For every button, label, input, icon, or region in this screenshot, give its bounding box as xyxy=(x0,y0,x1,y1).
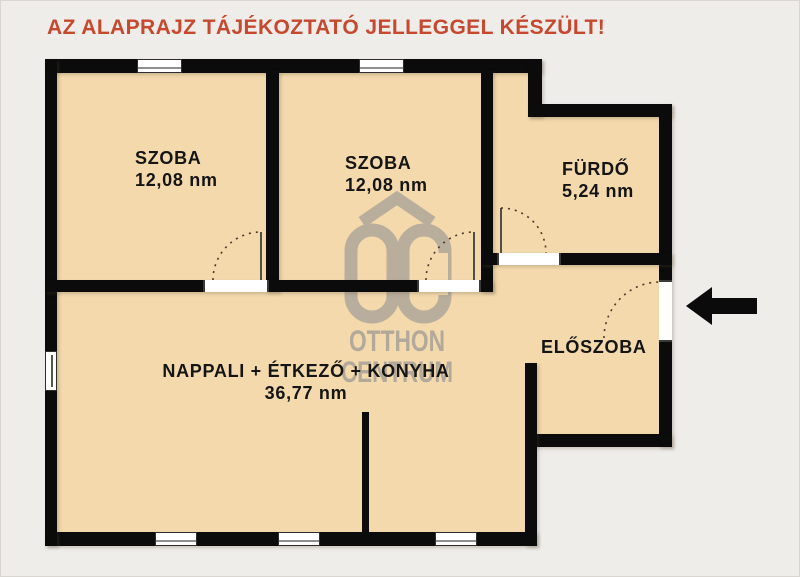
window-nappali-bottom-1 xyxy=(155,532,197,546)
room-area: 5,24 nm xyxy=(562,180,634,202)
wall-hall-left xyxy=(525,363,537,546)
window-nappali-bottom-2 xyxy=(278,532,320,546)
wall-outer-left xyxy=(45,59,57,546)
door-opening-szoba2 xyxy=(417,280,481,292)
room-name: SZOBA xyxy=(345,152,428,174)
disclaimer-title: AZ ALAPRAJZ TÁJÉKOZTATÓ JELLEGGEL KÉSZÜL… xyxy=(47,16,605,40)
wall-between-szoba1-szoba2 xyxy=(266,70,279,292)
floor-slab-right xyxy=(481,104,672,447)
room-area: 12,08 nm xyxy=(135,169,218,191)
room-label-furdo: FÜRDŐ 5,24 nm xyxy=(562,158,634,202)
floor-slab-corridor xyxy=(493,70,533,130)
wall-hall-bottom xyxy=(528,434,672,447)
room-name: SZOBA xyxy=(135,147,218,169)
room-name: ELŐSZOBA xyxy=(541,336,641,358)
window-nappali-bottom-3 xyxy=(435,532,477,546)
room-name: FÜRDŐ xyxy=(562,158,634,180)
window-szoba1-top xyxy=(137,59,182,73)
wall-bath-top xyxy=(528,104,672,117)
wall-outer-right xyxy=(659,104,672,447)
room-area: 12,08 nm xyxy=(345,174,428,196)
room-label-szoba1: SZOBA 12,08 nm xyxy=(135,147,218,191)
wall-kitchen-stub xyxy=(362,412,369,536)
floorplan-page: { "disclaimer": { "text": "AZ ALAPRAJZ T… xyxy=(0,0,800,577)
wall-outer-top xyxy=(45,59,542,73)
window-nappali-left xyxy=(45,351,57,391)
door-opening-furdo xyxy=(497,253,561,265)
door-opening-entrance xyxy=(659,280,672,342)
room-label-szoba2: SZOBA 12,08 nm xyxy=(345,152,428,196)
door-opening-szoba1 xyxy=(203,280,269,292)
room-name: NAPPALI + ÉTKEZŐ + KONYHA xyxy=(156,360,456,382)
floor-slab-main xyxy=(45,59,537,546)
window-szoba2-top xyxy=(359,59,404,73)
entrance-arrow-icon xyxy=(686,287,757,325)
room-label-eloszoba: ELŐSZOBA xyxy=(541,336,641,358)
room-area: 36,77 nm xyxy=(156,382,456,404)
room-label-nappali: NAPPALI + ÉTKEZŐ + KONYHA 36,77 nm xyxy=(156,360,456,404)
